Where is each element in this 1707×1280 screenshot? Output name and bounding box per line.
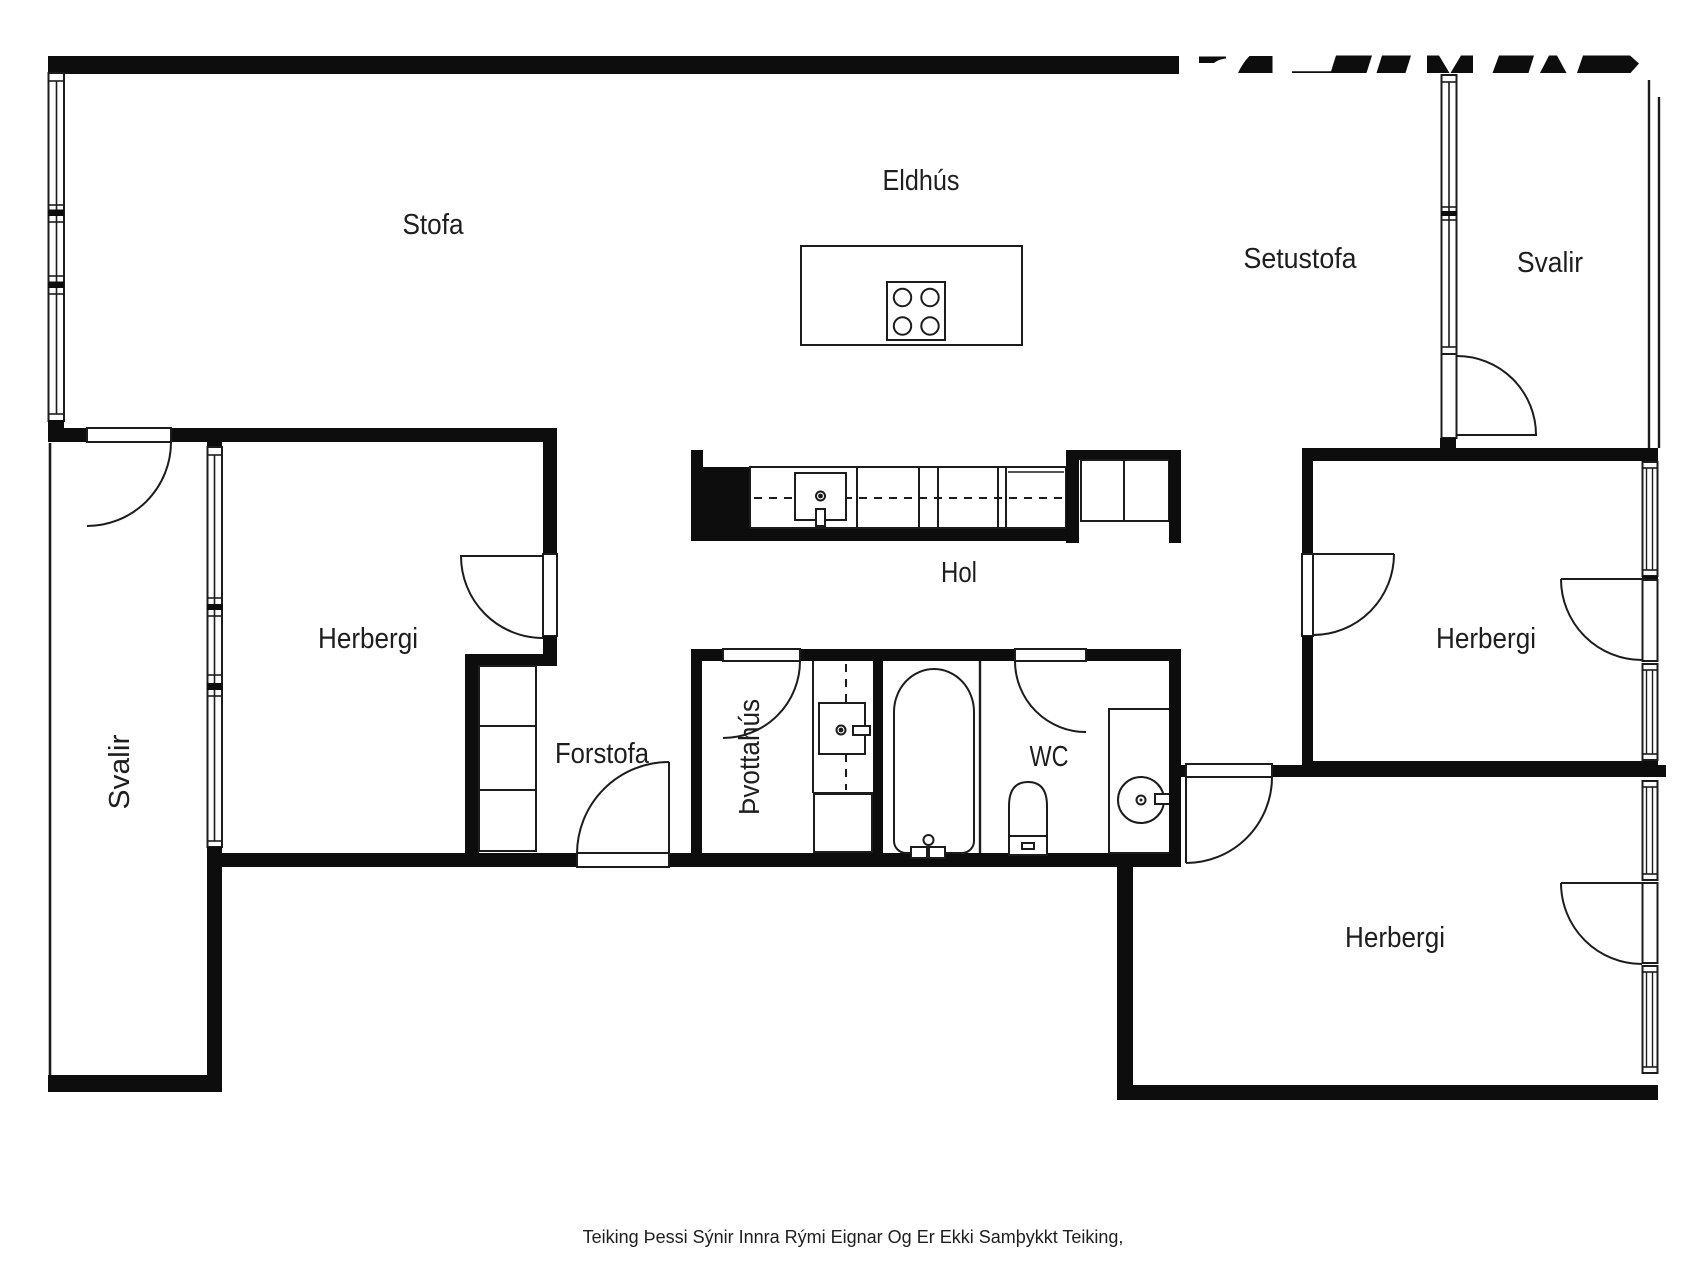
svg-text:Herbergi: Herbergi [1436,623,1536,655]
svg-text:Hol: Hol [941,557,977,589]
svg-text:Setustofa: Setustofa [1244,243,1358,275]
svg-text:Svalir: Svalir [1517,247,1583,279]
svg-text:Forstofa: Forstofa [555,738,650,770]
svg-text:Herbergi: Herbergi [1345,922,1445,954]
svg-text:Teiking Þessi Sýnir Innra Rými: Teiking Þessi Sýnir Innra Rými Eignar Og… [583,1227,1124,1247]
svg-text:Stofa: Stofa [403,209,465,241]
svg-text:WC: WC [1030,741,1069,773]
svg-text:Svalir: Svalir [104,734,136,809]
svg-text:Herbergi: Herbergi [318,623,418,655]
svg-text:Eldhús: Eldhús [883,165,960,197]
svg-text:Þvottahús: Þvottahús [734,699,766,815]
